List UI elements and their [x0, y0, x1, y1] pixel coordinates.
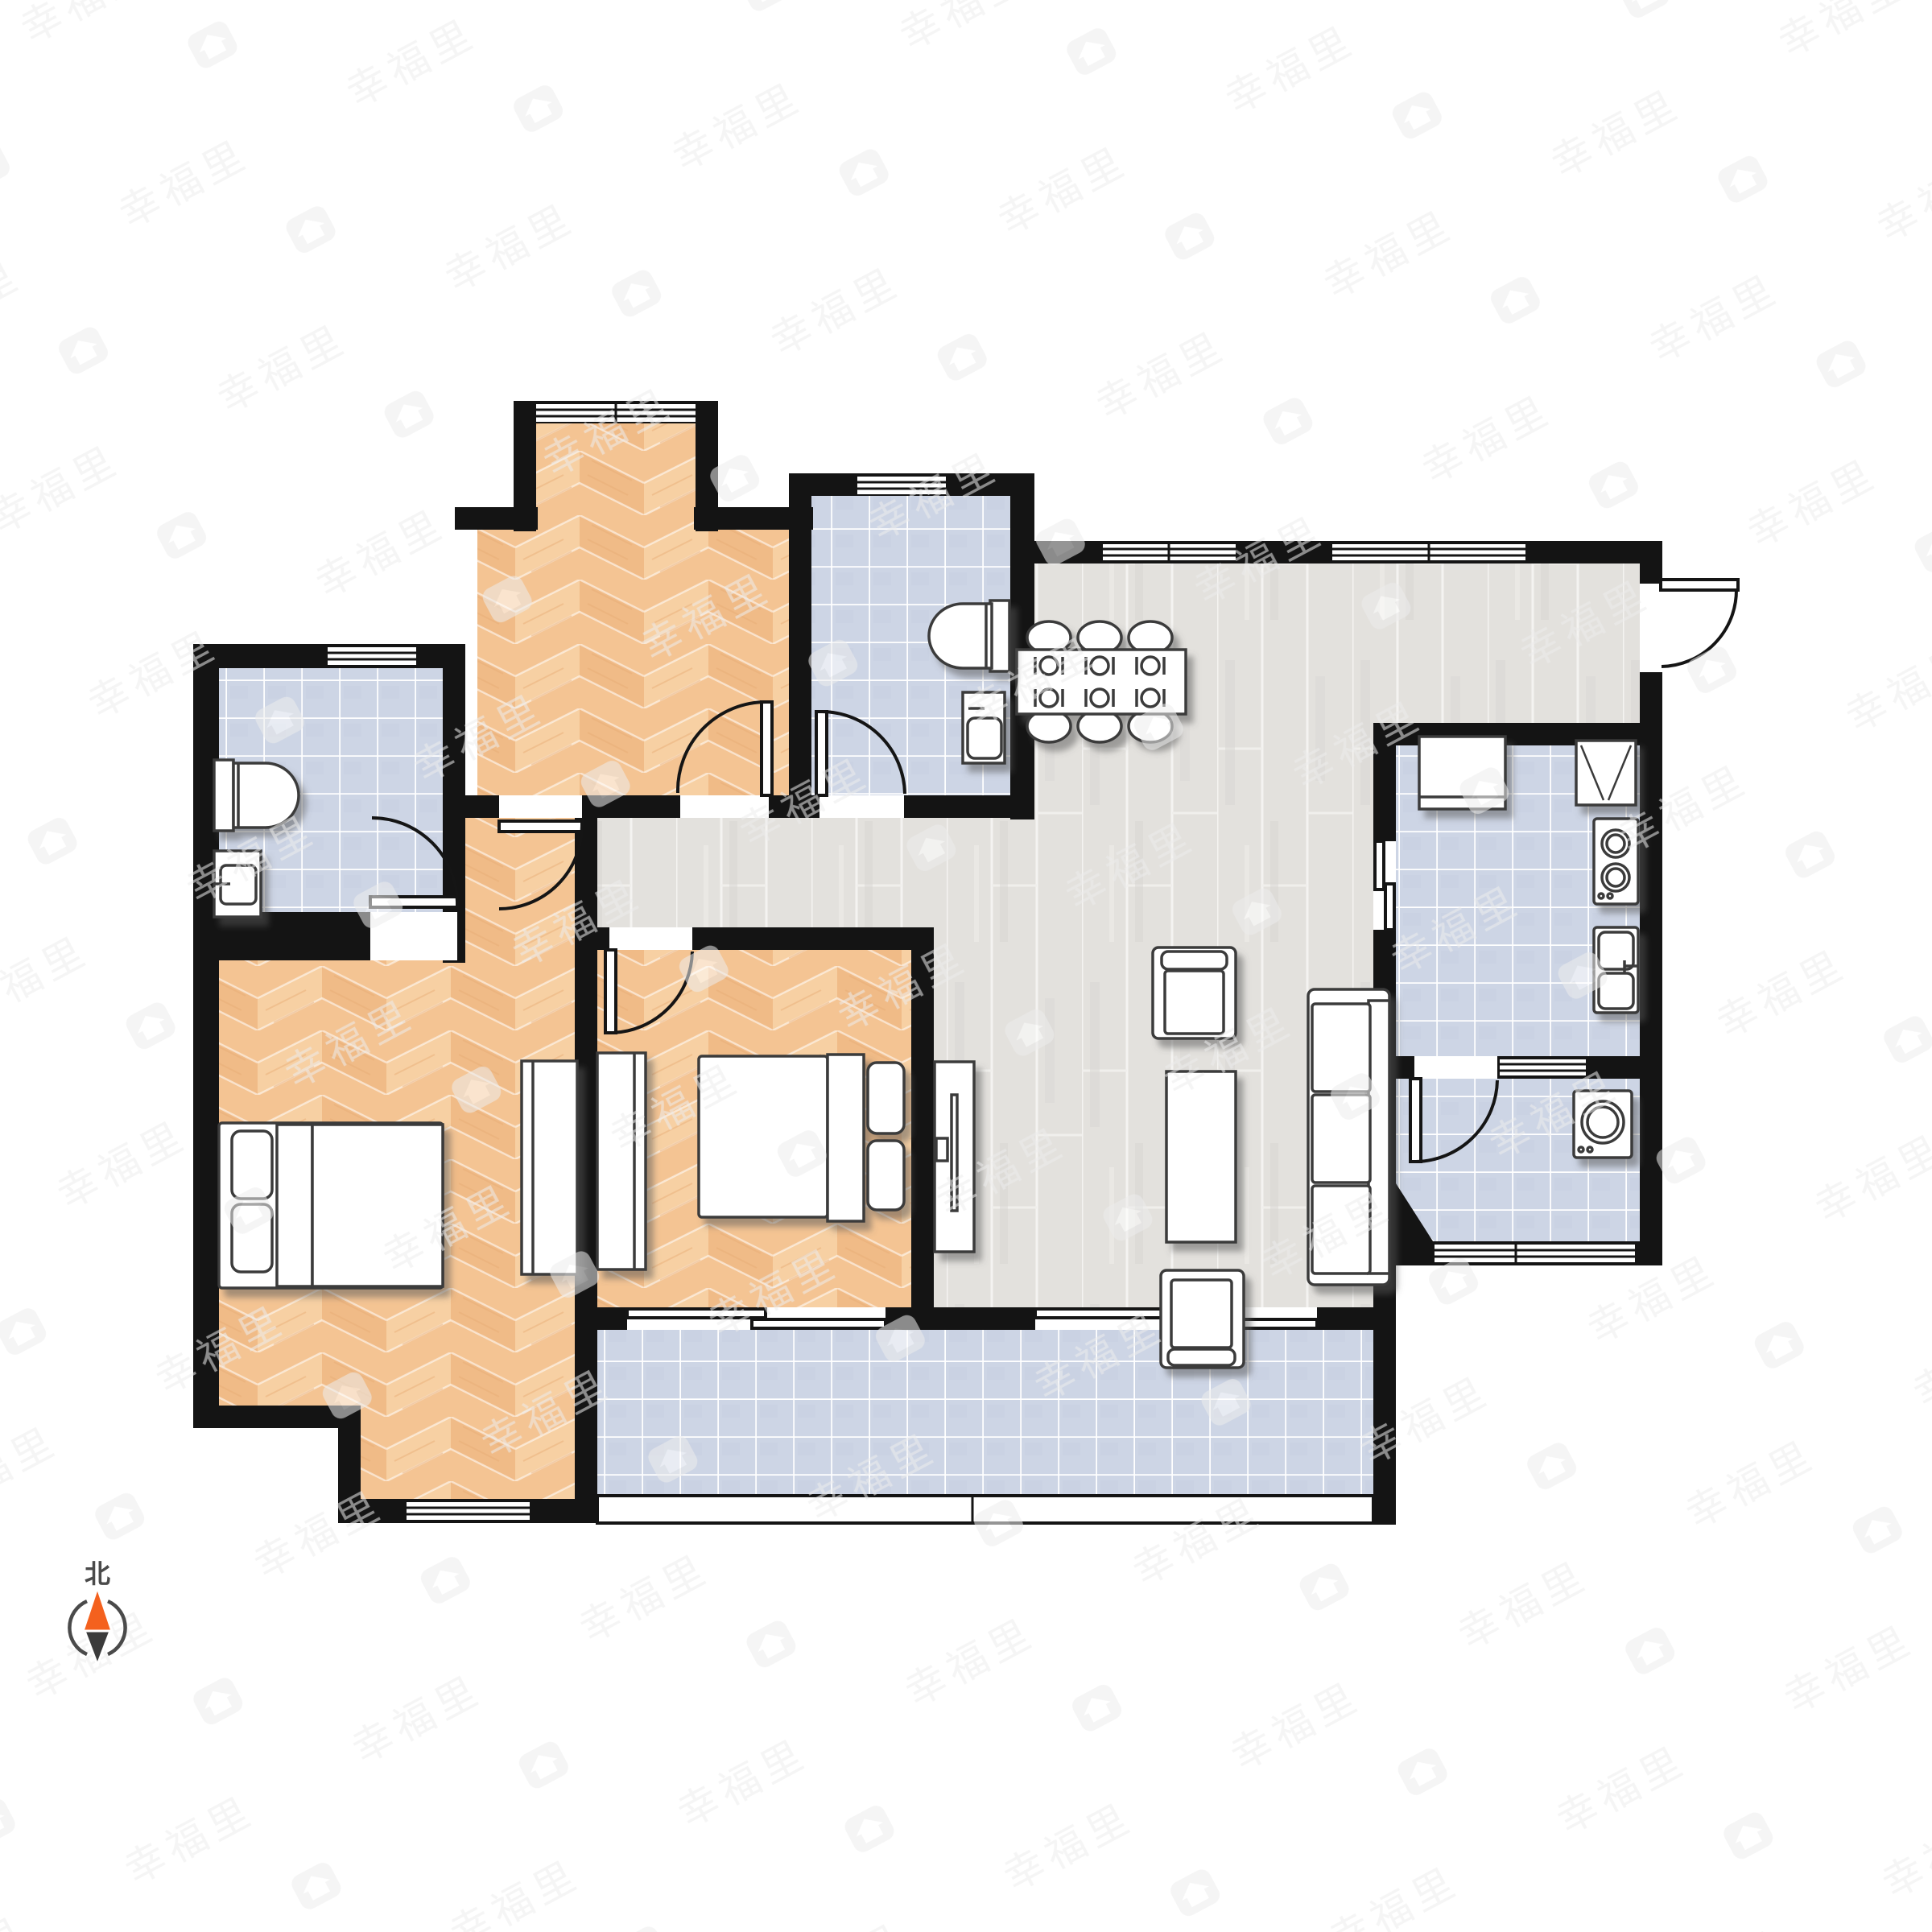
floorplan-svg: 幸福里: [0, 0, 1932, 1932]
floorplan-page: 幸福里: [0, 0, 1932, 1932]
watermark-layer: [0, 0, 1932, 1932]
